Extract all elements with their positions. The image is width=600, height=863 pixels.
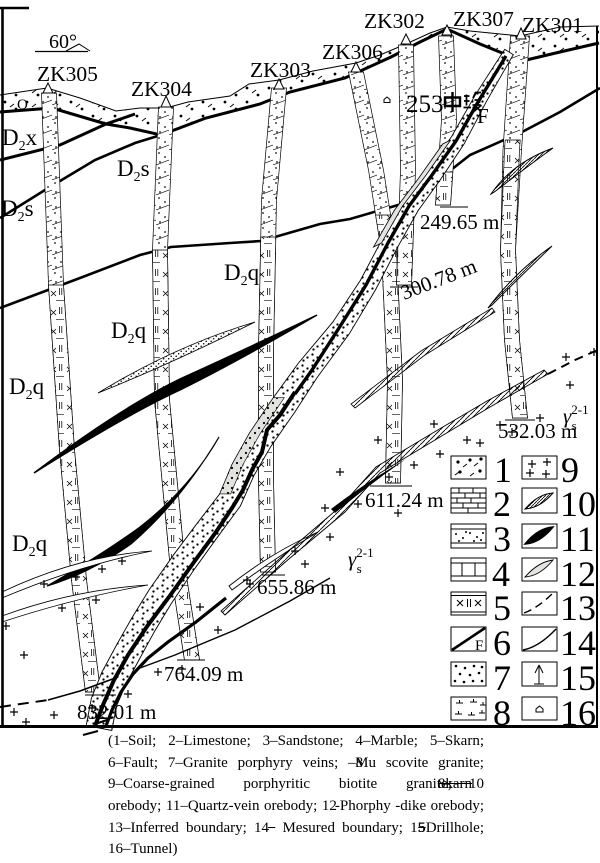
svg-text:F: F	[477, 104, 489, 128]
svg-text:611.24 m: 611.24 m	[365, 488, 444, 512]
svg-text:655.86 m: 655.86 m	[257, 575, 336, 599]
svg-text:ZK305: ZK305	[37, 62, 98, 86]
svg-text:F: F	[475, 638, 483, 654]
svg-text:ZK301: ZK301	[522, 13, 583, 37]
svg-text:10: 10	[560, 484, 596, 524]
svg-text:5: 5	[493, 588, 511, 628]
svg-text:832.01 m: 832.01 m	[77, 700, 156, 724]
svg-text:11: 11	[560, 519, 595, 559]
svg-text:16: 16	[560, 693, 596, 733]
svg-text:60°: 60°	[49, 31, 77, 53]
svg-text:D2s: D2s	[117, 156, 150, 185]
svg-text:ZK302: ZK302	[364, 9, 425, 33]
svg-text:ZK307: ZK307	[453, 7, 514, 31]
svg-text:13: 13	[560, 588, 596, 628]
svg-text:7: 7	[493, 658, 511, 698]
svg-text:2: 2	[493, 484, 511, 524]
svg-text:764.09 m: 764.09 m	[164, 662, 243, 686]
svg-text:Q: Q	[17, 97, 28, 113]
svg-text:249.65 m: 249.65 m	[420, 210, 499, 234]
svg-text:ZK304: ZK304	[131, 77, 192, 101]
svg-text:6: 6	[493, 623, 511, 663]
svg-text:15: 15	[560, 658, 596, 698]
svg-text:8: 8	[493, 693, 511, 733]
svg-text:3: 3	[493, 519, 511, 559]
svg-text:ZK303: ZK303	[250, 58, 311, 82]
svg-text:D2s: D2s	[1, 196, 34, 225]
svg-text:ZK306: ZK306	[322, 40, 383, 64]
svg-text:14: 14	[560, 623, 596, 663]
svg-text:253: 253	[406, 91, 444, 118]
